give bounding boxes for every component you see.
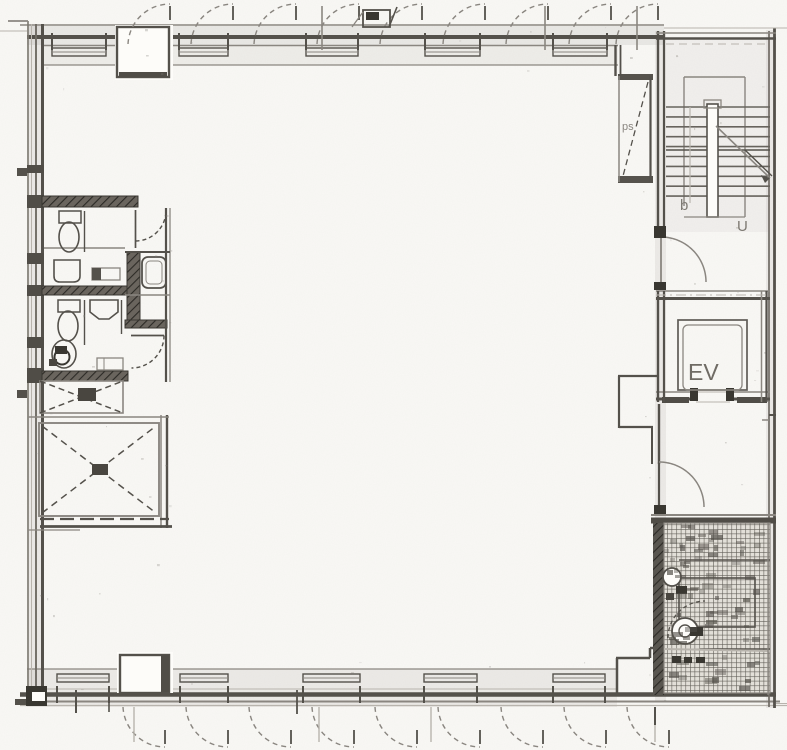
- svg-text:U: U: [737, 218, 748, 235]
- svg-text:b: b: [680, 197, 688, 214]
- svg-text:ps: ps: [622, 121, 634, 133]
- svg-text:EV: EV: [688, 359, 719, 385]
